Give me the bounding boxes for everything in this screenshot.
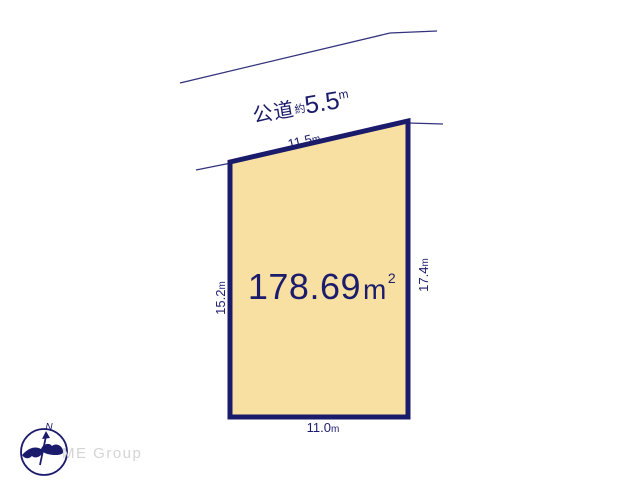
area-value: 178.69 (248, 266, 361, 307)
area-unit: m (363, 274, 387, 305)
dimension-bottom: 11.0m (307, 421, 340, 435)
dimension-left-unit: m (217, 281, 228, 289)
road-near-edge-right-stub (408, 123, 443, 124)
dimension-right-value: 17.4 (416, 267, 431, 292)
compass-north-letter: N (45, 422, 53, 433)
dimension-bottom-unit: m (331, 424, 339, 435)
road-width-value: 5.5 (303, 86, 342, 119)
area-unit-exponent: 2 (388, 270, 396, 286)
road-width-unit: m (337, 87, 349, 102)
diagram-canvas: N (0, 0, 640, 480)
road-far-edge-line (180, 31, 437, 83)
road-near-edge-left-stub (196, 163, 231, 170)
dimension-bottom-value: 11.0 (307, 420, 331, 435)
company-logo-text: ME Group (62, 446, 142, 461)
dimension-right-unit: m (420, 258, 431, 266)
compass-icon: N (21, 422, 67, 475)
dimension-right: 17.4m (417, 258, 431, 292)
land-area-label: 178.69m2 (248, 269, 396, 305)
dimension-left-value: 15.2 (213, 290, 228, 315)
land-plot-diagram: N 公道約5.5m 11.5m 15.2m 17.4m 11.0m 178.69… (0, 0, 640, 480)
dimension-left: 15.2m (214, 281, 228, 315)
